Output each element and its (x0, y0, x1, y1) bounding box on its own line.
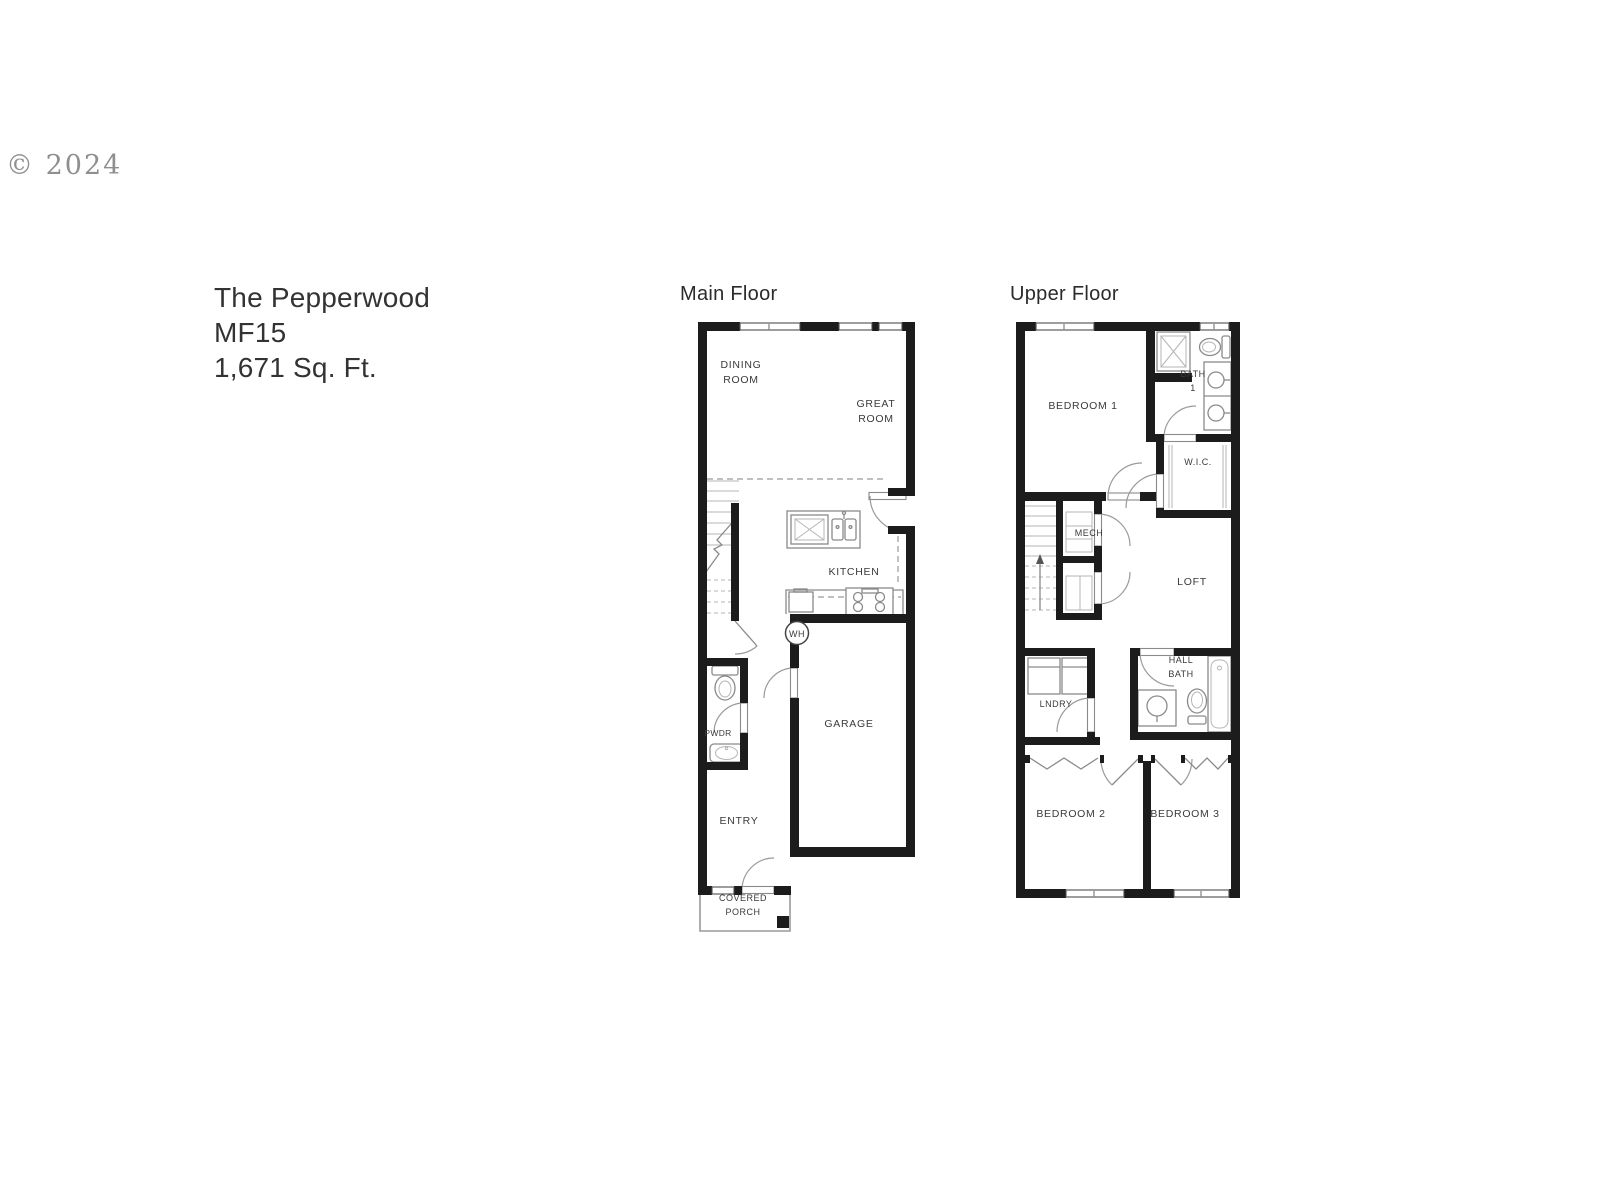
bedroom2-bifold-icon (1030, 758, 1098, 769)
kitchen-island (787, 511, 860, 548)
bedroom3-label: BEDROOM 3 (1150, 808, 1219, 820)
garage-label: GARAGE (824, 718, 873, 730)
hallbath-toilet-icon (1188, 689, 1207, 724)
hallbath-vanity-icon (1138, 690, 1176, 726)
water-heater-label: WH (789, 629, 805, 639)
upper-floor-plan: BEDROOM 1 BATH 1 W.I.C. MECH LOFT HALL B… (1005, 310, 1250, 910)
entry-label: ENTRY (720, 815, 759, 827)
hall-bath-label: HALL (1169, 655, 1194, 665)
wic-shelving (1169, 445, 1226, 508)
bath1-toilet-icon (1200, 336, 1231, 358)
bathtub-icon (1208, 656, 1231, 732)
range-icon (846, 588, 893, 615)
hall-bath-label2: BATH (1168, 669, 1193, 679)
powder-sink-icon (710, 744, 743, 762)
main-floor-heading: Main Floor (680, 283, 777, 306)
porch-label2: PORCH (725, 907, 760, 917)
porch-post (777, 916, 789, 928)
dining-room-label2: ROOM (723, 374, 758, 386)
kitchen-counter (786, 588, 903, 615)
counter-appliance-icon (789, 592, 813, 612)
bedroom1-label: BEDROOM 1 (1048, 400, 1117, 412)
powder-toilet-icon (712, 666, 738, 700)
bedroom2-label: BEDROOM 2 (1036, 808, 1105, 820)
upper-floor-heading: Upper Floor (1010, 283, 1119, 306)
stairs-up (1025, 506, 1056, 610)
loft-label: LOFT (1177, 576, 1207, 588)
laundry-label: LNDRY (1040, 699, 1073, 709)
copyright-notice: © 2024 (6, 150, 122, 181)
great-room-label: GREAT (857, 398, 896, 410)
plan-model: MF15 (214, 315, 430, 350)
kitchen-label: KITCHEN (829, 566, 880, 578)
washer-dryer-icon (1028, 658, 1094, 694)
great-room-label2: ROOM (858, 413, 893, 425)
bath1-vanity-icon (1204, 362, 1231, 430)
shower-icon (1157, 332, 1190, 371)
plan-area: 1,671 Sq. Ft. (214, 350, 430, 385)
bath1-label2: 1 (1190, 383, 1196, 393)
mech-label: MECH (1075, 528, 1104, 538)
dining-room-label: DINING (721, 359, 762, 371)
porch-label: COVERED (719, 893, 767, 903)
wic-label: W.I.C. (1184, 457, 1212, 467)
plan-name: The Pepperwood (214, 280, 430, 315)
main-floor-plan: DINING ROOM GREAT ROOM KITCHEN WH PWDR G… (690, 310, 940, 950)
powder-label: PWDR (704, 728, 731, 738)
plan-title-block: The Pepperwood MF15 1,671 Sq. Ft. (214, 280, 430, 385)
bath1-label: BATH (1180, 369, 1205, 379)
